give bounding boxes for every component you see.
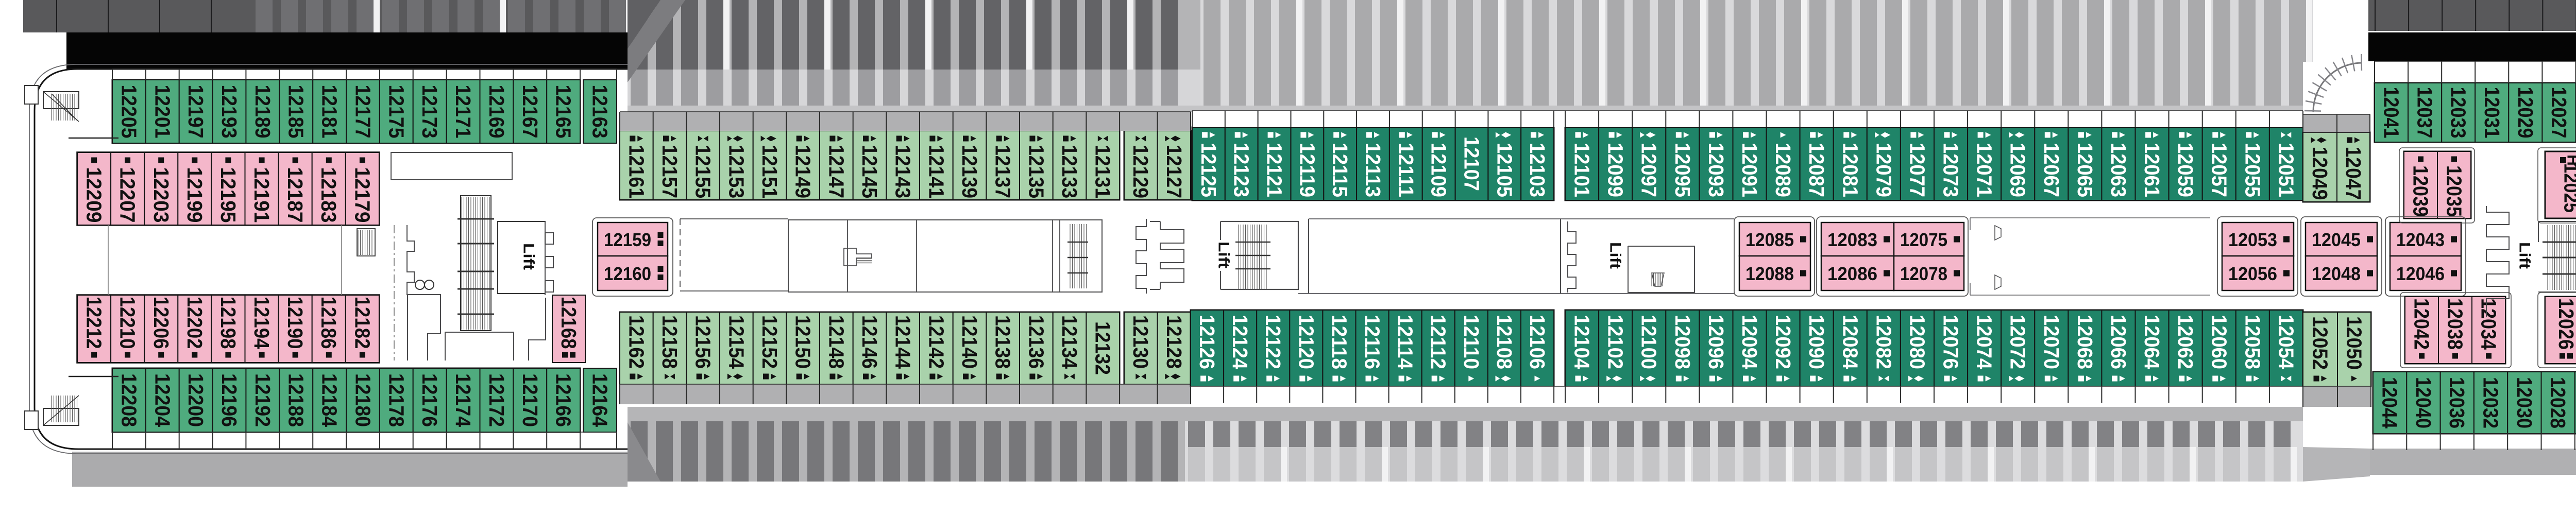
- svg-text:12081: 12081: [1838, 143, 1862, 197]
- svg-text:12193: 12193: [217, 85, 241, 139]
- svg-text:12037: 12037: [2413, 87, 2437, 139]
- svg-text:12111: 12111: [1394, 143, 1418, 197]
- svg-text:12167: 12167: [518, 85, 542, 139]
- svg-text:12035: 12035: [2443, 165, 2466, 217]
- svg-text:12114: 12114: [1394, 315, 1417, 369]
- svg-text:12142: 12142: [924, 315, 948, 369]
- svg-text:12112: 12112: [1427, 315, 1450, 369]
- svg-text:12075: 12075: [1900, 229, 1947, 250]
- svg-text:12161: 12161: [624, 145, 648, 198]
- svg-text:12054: 12054: [2274, 315, 2298, 369]
- svg-text:12188: 12188: [284, 373, 308, 427]
- svg-text:12091: 12091: [1738, 143, 1761, 197]
- svg-text:12141: 12141: [924, 145, 948, 198]
- svg-text:12089: 12089: [1771, 143, 1795, 197]
- svg-text:12172: 12172: [485, 373, 509, 427]
- svg-text:12070: 12070: [2040, 315, 2063, 369]
- svg-text:12106: 12106: [1526, 315, 1549, 369]
- svg-text:12088: 12088: [1745, 263, 1794, 284]
- svg-text:12092: 12092: [1771, 315, 1795, 369]
- svg-text:12203: 12203: [149, 167, 173, 223]
- svg-text:12150: 12150: [791, 315, 815, 369]
- svg-text:12056: 12056: [2228, 263, 2277, 284]
- svg-text:12044: 12044: [2378, 377, 2402, 428]
- svg-text:12176: 12176: [418, 373, 442, 427]
- svg-text:12202: 12202: [183, 297, 207, 349]
- svg-text:12205: 12205: [117, 85, 141, 139]
- svg-text:12101: 12101: [1570, 143, 1594, 197]
- svg-text:12152: 12152: [758, 315, 782, 369]
- svg-text:12199: 12199: [183, 167, 207, 223]
- svg-text:12132: 12132: [1091, 321, 1115, 375]
- svg-text:12178: 12178: [384, 373, 408, 427]
- svg-text:12052: 12052: [2309, 316, 2332, 370]
- svg-text:12162: 12162: [624, 315, 648, 369]
- svg-text:12186: 12186: [317, 297, 341, 349]
- svg-text:12153: 12153: [724, 145, 748, 198]
- svg-text:12195: 12195: [216, 167, 240, 223]
- svg-text:12097: 12097: [1637, 143, 1661, 197]
- svg-text:Lift: Lift: [2516, 242, 2533, 269]
- svg-text:12028: 12028: [2546, 377, 2570, 428]
- svg-text:12074: 12074: [1973, 315, 1996, 369]
- svg-text:12105: 12105: [1493, 143, 1516, 197]
- svg-text:12197: 12197: [184, 85, 208, 139]
- svg-text:12126: 12126: [1195, 315, 1219, 369]
- svg-text:12103: 12103: [1526, 143, 1549, 197]
- svg-text:12025: 12025: [2560, 163, 2576, 213]
- svg-text:12190: 12190: [283, 297, 307, 349]
- svg-text:12201: 12201: [150, 85, 174, 139]
- svg-text:12168: 12168: [557, 297, 581, 349]
- svg-text:12155: 12155: [691, 145, 715, 198]
- svg-text:12146: 12146: [858, 315, 882, 369]
- svg-text:12115: 12115: [1328, 143, 1352, 197]
- svg-text:12029: 12029: [2514, 87, 2537, 139]
- svg-text:12206: 12206: [149, 297, 173, 349]
- svg-text:12076: 12076: [1939, 315, 1963, 369]
- svg-text:12130: 12130: [1129, 315, 1153, 369]
- svg-text:12120: 12120: [1294, 315, 1318, 369]
- svg-text:12166: 12166: [552, 373, 575, 427]
- svg-text:12053: 12053: [2228, 229, 2277, 250]
- svg-text:12200: 12200: [184, 373, 208, 427]
- svg-text:12131: 12131: [1091, 145, 1115, 198]
- svg-text:Lift: Lift: [1215, 242, 1232, 268]
- svg-text:12137: 12137: [991, 145, 1015, 198]
- svg-text:12116: 12116: [1361, 315, 1384, 369]
- svg-text:12109: 12109: [1427, 143, 1451, 197]
- svg-text:12169: 12169: [485, 85, 509, 139]
- svg-text:12127: 12127: [1162, 145, 1186, 198]
- svg-text:12180: 12180: [351, 373, 375, 427]
- svg-text:12204: 12204: [150, 373, 174, 427]
- svg-text:12128: 12128: [1162, 315, 1186, 369]
- svg-text:12149: 12149: [791, 145, 815, 198]
- svg-text:12102: 12102: [1604, 315, 1628, 369]
- svg-text:Lift: Lift: [1607, 242, 1624, 269]
- svg-text:12134: 12134: [1058, 315, 1081, 369]
- svg-text:12073: 12073: [1939, 143, 1963, 197]
- svg-text:12136: 12136: [1024, 315, 1048, 369]
- svg-text:12085: 12085: [1745, 229, 1794, 250]
- svg-text:12094: 12094: [1738, 315, 1761, 369]
- svg-text:12143: 12143: [891, 145, 915, 198]
- svg-text:12058: 12058: [2241, 315, 2264, 369]
- svg-text:12077: 12077: [1905, 143, 1929, 197]
- svg-text:12148: 12148: [824, 315, 848, 369]
- svg-text:12093: 12093: [1704, 143, 1728, 197]
- svg-text:12157: 12157: [658, 145, 682, 198]
- svg-text:12062: 12062: [2174, 315, 2197, 369]
- svg-text:12043: 12043: [2396, 229, 2445, 250]
- svg-text:12184: 12184: [318, 373, 342, 427]
- svg-text:12196: 12196: [217, 373, 241, 427]
- svg-text:12212: 12212: [82, 297, 106, 349]
- svg-text:12100: 12100: [1637, 315, 1661, 369]
- svg-text:12057: 12057: [2207, 143, 2231, 197]
- svg-text:12138: 12138: [991, 315, 1015, 369]
- svg-text:12182: 12182: [350, 297, 374, 349]
- svg-text:12208: 12208: [117, 373, 141, 427]
- svg-text:12187: 12187: [283, 167, 307, 223]
- svg-text:12175: 12175: [384, 85, 408, 139]
- svg-text:12084: 12084: [1838, 315, 1862, 369]
- svg-text:12129: 12129: [1129, 145, 1153, 198]
- svg-text:12122: 12122: [1261, 315, 1285, 369]
- svg-text:12170: 12170: [518, 373, 542, 427]
- svg-text:12087: 12087: [1805, 143, 1828, 197]
- svg-text:12133: 12133: [1058, 145, 1081, 198]
- svg-text:12095: 12095: [1671, 143, 1694, 197]
- svg-text:12034: 12034: [2477, 298, 2501, 350]
- svg-text:12038: 12038: [2444, 298, 2467, 350]
- svg-text:12069: 12069: [2006, 143, 2030, 197]
- svg-text:12210: 12210: [116, 297, 140, 349]
- svg-text:12099: 12099: [1604, 143, 1628, 197]
- svg-text:12042: 12042: [2410, 298, 2434, 350]
- svg-text:12207: 12207: [116, 167, 140, 223]
- svg-text:12051: 12051: [2274, 143, 2298, 197]
- svg-text:12026: 12026: [2554, 298, 2576, 350]
- svg-text:12171: 12171: [451, 85, 475, 139]
- svg-text:12144: 12144: [891, 315, 915, 369]
- svg-text:12063: 12063: [2107, 143, 2130, 197]
- svg-text:12160: 12160: [604, 263, 651, 284]
- svg-text:12080: 12080: [1905, 315, 1929, 369]
- svg-text:12165: 12165: [552, 85, 575, 139]
- svg-text:12049: 12049: [2308, 147, 2332, 200]
- svg-text:12177: 12177: [351, 85, 375, 139]
- svg-text:12189: 12189: [251, 85, 275, 139]
- svg-text:12125: 12125: [1197, 143, 1221, 197]
- svg-text:12179: 12179: [350, 167, 374, 223]
- svg-text:Lift: Lift: [520, 243, 537, 270]
- svg-text:12090: 12090: [1805, 315, 1828, 369]
- svg-text:12066: 12066: [2107, 315, 2130, 369]
- svg-text:12107: 12107: [1460, 136, 1484, 191]
- svg-text:12123: 12123: [1230, 143, 1253, 197]
- svg-text:12163: 12163: [588, 85, 612, 139]
- svg-text:12065: 12065: [2073, 143, 2097, 197]
- svg-text:12086: 12086: [1827, 263, 1877, 284]
- svg-text:12119: 12119: [1295, 143, 1319, 197]
- svg-text:12082: 12082: [1872, 315, 1895, 369]
- svg-text:12164: 12164: [588, 373, 612, 427]
- svg-text:12050: 12050: [2343, 316, 2366, 370]
- svg-text:12059: 12059: [2174, 143, 2197, 197]
- svg-text:12032: 12032: [2479, 377, 2503, 428]
- svg-text:12039: 12039: [2409, 165, 2433, 217]
- svg-text:12031: 12031: [2480, 87, 2504, 139]
- svg-text:12078: 12078: [1900, 263, 1947, 284]
- svg-text:12183: 12183: [317, 167, 341, 223]
- svg-text:12068: 12068: [2073, 315, 2097, 369]
- svg-text:12121: 12121: [1263, 143, 1286, 197]
- svg-text:12046: 12046: [2396, 263, 2445, 284]
- svg-text:12118: 12118: [1327, 315, 1351, 369]
- svg-text:12110: 12110: [1460, 315, 1483, 369]
- svg-text:12104: 12104: [1570, 315, 1594, 369]
- svg-text:12156: 12156: [691, 315, 715, 369]
- svg-text:12154: 12154: [724, 315, 748, 369]
- svg-text:12048: 12048: [2312, 263, 2361, 284]
- svg-text:12159: 12159: [604, 229, 651, 250]
- svg-text:12147: 12147: [824, 145, 848, 198]
- svg-text:12098: 12098: [1671, 315, 1694, 369]
- svg-text:12064: 12064: [2140, 315, 2164, 369]
- svg-text:12096: 12096: [1704, 315, 1728, 369]
- svg-text:12192: 12192: [251, 373, 275, 427]
- svg-text:12041: 12041: [2380, 87, 2403, 139]
- svg-text:12108: 12108: [1493, 315, 1516, 369]
- svg-text:12158: 12158: [658, 315, 682, 369]
- svg-text:12135: 12135: [1024, 145, 1048, 198]
- svg-text:12055: 12055: [2241, 143, 2264, 197]
- svg-text:12083: 12083: [1827, 229, 1877, 250]
- svg-text:12071: 12071: [1973, 143, 1996, 197]
- svg-text:12174: 12174: [451, 373, 475, 427]
- svg-text:12198: 12198: [216, 297, 240, 349]
- svg-text:12030: 12030: [2513, 377, 2536, 428]
- svg-text:12139: 12139: [958, 145, 981, 198]
- svg-text:12027: 12027: [2547, 87, 2571, 139]
- svg-text:12194: 12194: [250, 297, 274, 349]
- svg-text:12113: 12113: [1361, 143, 1385, 197]
- svg-text:12040: 12040: [2412, 377, 2435, 428]
- svg-text:12151: 12151: [758, 145, 782, 198]
- svg-text:12185: 12185: [284, 85, 308, 139]
- svg-text:12173: 12173: [418, 85, 442, 139]
- svg-text:12209: 12209: [82, 167, 106, 223]
- svg-text:12045: 12045: [2312, 229, 2361, 250]
- svg-text:12145: 12145: [858, 145, 882, 198]
- svg-text:12140: 12140: [958, 315, 981, 369]
- svg-text:12060: 12060: [2207, 315, 2231, 369]
- svg-text:12047: 12047: [2342, 147, 2365, 200]
- svg-text:12061: 12061: [2140, 143, 2164, 197]
- svg-text:12067: 12067: [2040, 143, 2063, 197]
- svg-text:12079: 12079: [1872, 143, 1895, 197]
- svg-text:12033: 12033: [2447, 87, 2470, 139]
- svg-text:12036: 12036: [2445, 377, 2469, 428]
- svg-text:12124: 12124: [1228, 315, 1252, 369]
- svg-text:12072: 12072: [2006, 315, 2030, 369]
- svg-text:12191: 12191: [250, 167, 274, 223]
- svg-text:12181: 12181: [318, 85, 342, 139]
